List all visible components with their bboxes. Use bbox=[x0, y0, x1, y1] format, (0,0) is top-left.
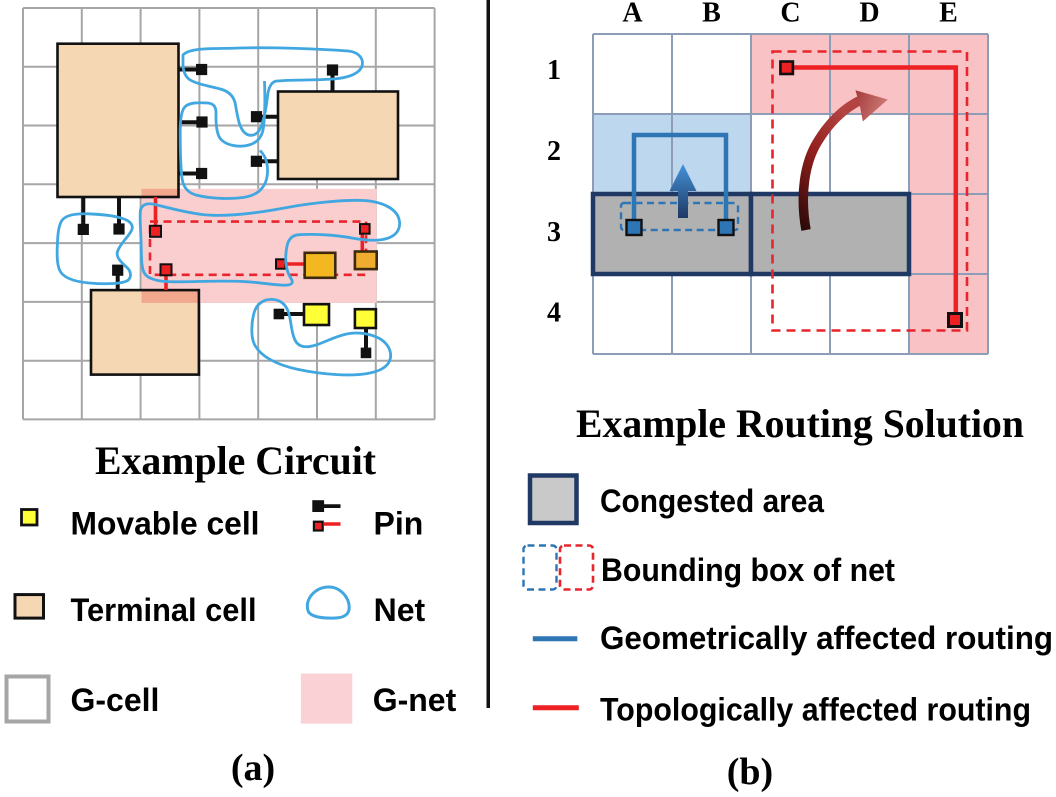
svg-text:Example Routing Solution: Example Routing Solution bbox=[576, 401, 1024, 446]
svg-text:E: E bbox=[939, 0, 958, 29]
svg-text:Geometrically affected routing: Geometrically affected routing bbox=[600, 620, 1053, 656]
svg-text:3: 3 bbox=[547, 217, 561, 248]
svg-text:B: B bbox=[702, 0, 721, 29]
svg-text:2: 2 bbox=[547, 136, 561, 167]
svg-text:Pin: Pin bbox=[374, 506, 424, 542]
svg-text:Topologically affected routing: Topologically affected routing bbox=[600, 692, 1031, 728]
svg-text:Example Circuit: Example Circuit bbox=[95, 438, 377, 483]
svg-text:G-cell: G-cell bbox=[71, 682, 160, 718]
svg-text:Movable cell: Movable cell bbox=[71, 506, 260, 542]
svg-text:(a): (a) bbox=[231, 747, 275, 789]
svg-text:A: A bbox=[622, 0, 643, 29]
svg-text:Net: Net bbox=[374, 592, 426, 628]
svg-text:Terminal cell: Terminal cell bbox=[71, 592, 257, 628]
svg-text:4: 4 bbox=[547, 298, 561, 329]
svg-text:D: D bbox=[859, 0, 879, 29]
svg-text:1: 1 bbox=[547, 55, 561, 86]
svg-text:Congested area: Congested area bbox=[600, 483, 824, 519]
svg-text:G-net: G-net bbox=[373, 682, 457, 718]
svg-text:(b): (b) bbox=[727, 751, 773, 793]
svg-text:C: C bbox=[780, 0, 800, 29]
svg-text:Bounding box of net: Bounding box of net bbox=[601, 552, 895, 588]
